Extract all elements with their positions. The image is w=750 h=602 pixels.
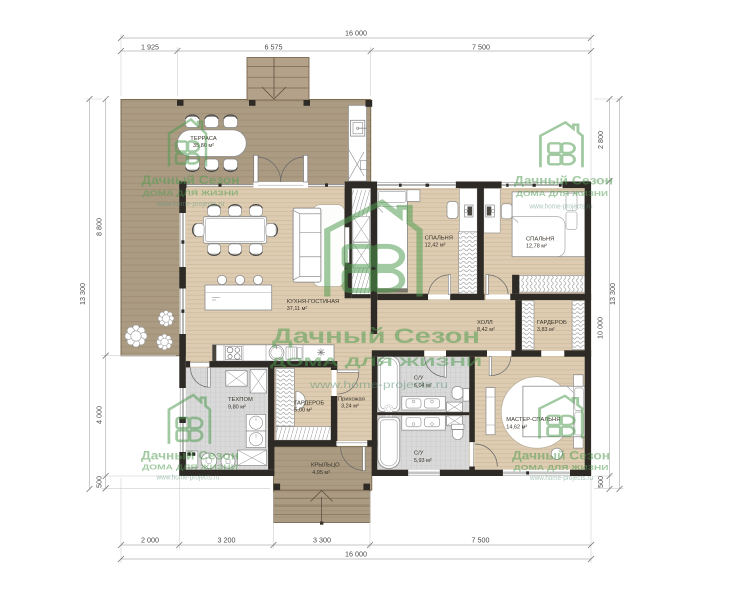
svg-text:www.home-projects.ru: www.home-projects.ru (529, 204, 593, 211)
svg-text:КУХНЯ-ГОСТИНАЯ: КУХНЯ-ГОСТИНАЯ (287, 299, 340, 305)
svg-text:10 000: 10 000 (596, 317, 605, 339)
svg-text:ДОМА ДЛЯ ЖИЗНИ: ДОМА ДЛЯ ЖИЗНИ (270, 355, 482, 369)
svg-text:ДОМА ДЛЯ ЖИЗНИ: ДОМА ДЛЯ ЖИЗНИ (514, 465, 609, 472)
svg-text:Дачный Сезон: Дачный Сезон (272, 324, 480, 348)
svg-text:16 000: 16 000 (345, 550, 367, 559)
svg-text:7 500: 7 500 (472, 536, 490, 545)
svg-text:Прихожая: Прихожая (338, 397, 365, 403)
svg-text:www.home-projects.ru: www.home-projects.ru (156, 475, 220, 482)
svg-text:МАСТЕР-СПАЛЬНЯ: МАСТЕР-СПАЛЬНЯ (506, 417, 560, 423)
svg-text:ДОМА ДЛЯ ЖИЗНИ: ДОМА ДЛЯ ЖИЗНИ (516, 191, 608, 198)
svg-text:4,95 м²: 4,95 м² (312, 470, 330, 476)
svg-text:www.home-projects.ru: www.home-projects.ru (529, 475, 593, 482)
svg-text:1 925: 1 925 (141, 42, 159, 51)
svg-text:5,00 м²: 5,00 м² (294, 408, 312, 414)
svg-text:СПАЛЬНЯ: СПАЛЬНЯ (526, 237, 554, 243)
svg-text:С/У: С/У (414, 451, 424, 457)
svg-text:СПАЛЬНЯ: СПАЛЬНЯ (425, 236, 453, 242)
svg-text:Дачный Сезон: Дачный Сезон (514, 174, 613, 188)
svg-text:ГАРДЕРОБ: ГАРДЕРОБ (294, 401, 324, 407)
svg-text:3 300: 3 300 (313, 536, 331, 545)
svg-text:16 000: 16 000 (345, 29, 367, 38)
svg-text:Дачный Сезон: Дачный Сезон (512, 449, 610, 463)
svg-text:ДОМА ДЛЯ ЖИЗНИ: ДОМА ДЛЯ ЖИЗНИ (143, 191, 239, 198)
svg-text:ДОМА ДЛЯ ЖИЗНИ: ДОМА ДЛЯ ЖИЗНИ (142, 465, 238, 472)
svg-text:3,83 м²: 3,83 м² (537, 327, 555, 333)
svg-text:www.home-projects.ru: www.home-projects.ru (156, 201, 225, 208)
svg-text:14,62 м²: 14,62 м² (506, 425, 527, 431)
svg-text:4 000: 4 000 (95, 406, 104, 424)
svg-text:12,78 м²: 12,78 м² (526, 244, 547, 250)
svg-text:КРЫЛЬЦО: КРЫЛЬЦО (311, 463, 340, 469)
svg-text:2 800: 2 800 (596, 131, 605, 149)
svg-text:2 000: 2 000 (141, 536, 159, 545)
svg-text:13 300: 13 300 (608, 283, 617, 305)
svg-text:ГАРДЕРОБ: ГАРДЕРОБ (537, 320, 567, 326)
svg-text:13 300: 13 300 (78, 283, 87, 305)
svg-text:12,42 м²: 12,42 м² (425, 243, 446, 249)
svg-text:37,11 м²: 37,11 м² (287, 306, 308, 312)
svg-text:9,80 м²: 9,80 м² (228, 405, 246, 411)
svg-text:500: 500 (95, 476, 104, 488)
svg-text:Дачный Сезон: Дачный Сезон (141, 449, 239, 463)
svg-text:500: 500 (596, 476, 605, 488)
svg-text:5,93 м²: 5,93 м² (414, 458, 432, 464)
svg-text:6 575: 6 575 (265, 42, 283, 51)
svg-text:www.home-projects.ru: www.home-projects.ru (309, 380, 448, 391)
svg-text:3 200: 3 200 (218, 536, 236, 545)
svg-text:8 800: 8 800 (95, 218, 104, 236)
svg-text:ТЕХПОМ: ТЕХПОМ (228, 397, 253, 403)
svg-text:3,24 м²: 3,24 м² (341, 404, 359, 410)
svg-text:Дачный Сезон: Дачный Сезон (142, 173, 240, 187)
svg-text:7 500: 7 500 (472, 42, 490, 51)
